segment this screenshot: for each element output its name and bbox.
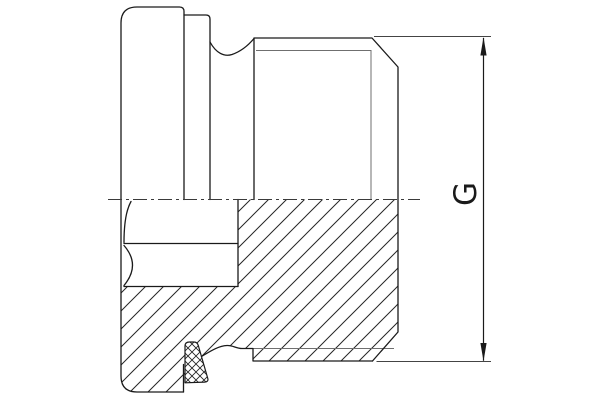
technical-drawing-canvas: G	[0, 0, 600, 400]
dimension-label-G: G	[448, 182, 484, 206]
technical-drawing-plug-half-section: G	[0, 0, 600, 400]
